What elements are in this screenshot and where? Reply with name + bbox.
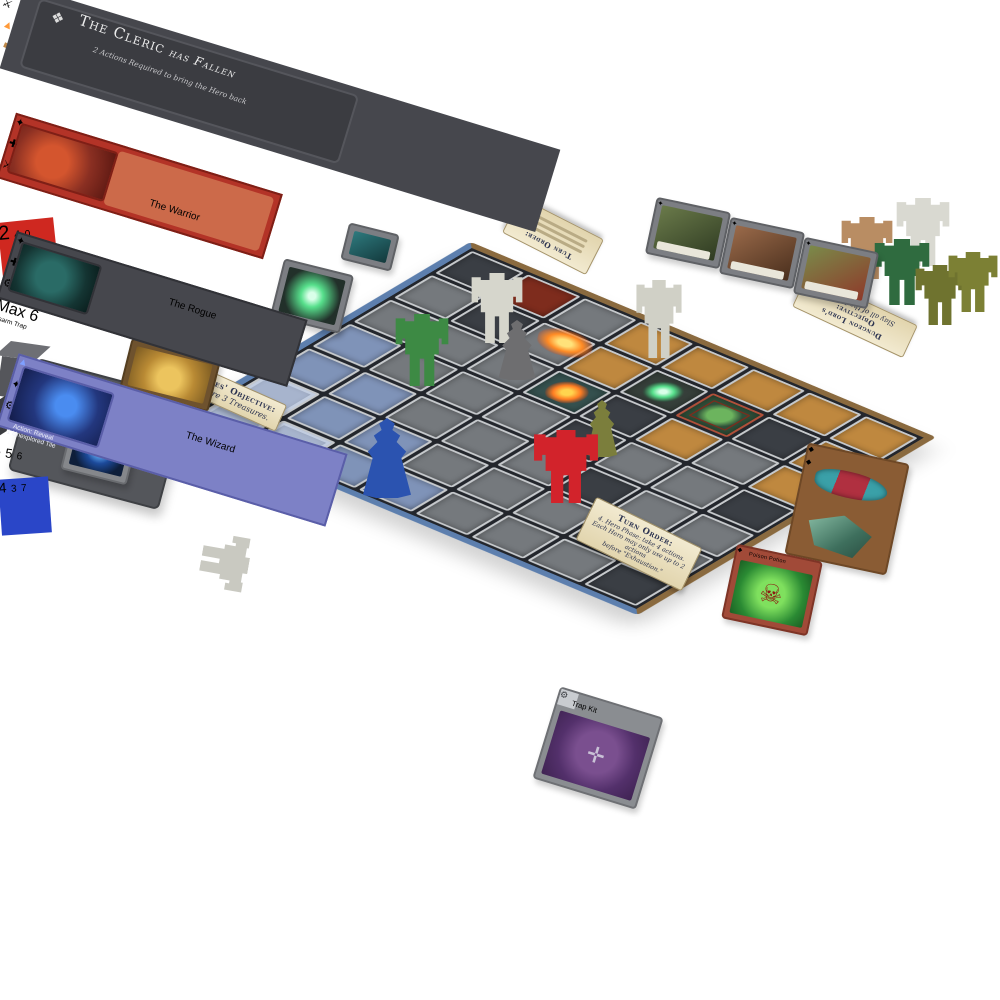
skull-icon: ☠	[757, 576, 786, 611]
warrior-art-window	[6, 123, 119, 203]
wizard-d8-die: 4 3 7	[0, 476, 52, 535]
trap-kit-card: Trap Kit ✛ ⚙	[532, 686, 663, 809]
teal-card	[340, 222, 400, 271]
caltrop-icon: ✛	[583, 741, 608, 771]
teal-card-art	[349, 231, 392, 263]
board-game-photo: Heroes' Objective: Acquire 3 Treasures. …	[0, 0, 1000, 1000]
rogue-banner: The Rogue	[165, 297, 289, 350]
d8-top-facet	[0, 476, 48, 479]
fallen-cleric-meeple	[196, 529, 253, 594]
wizard-banner: The Wizard	[183, 430, 310, 484]
treasure-card-panel: ◆ ◆	[784, 442, 909, 575]
monster-card: ✦	[719, 217, 805, 290]
monster-card: ✦	[645, 197, 731, 270]
